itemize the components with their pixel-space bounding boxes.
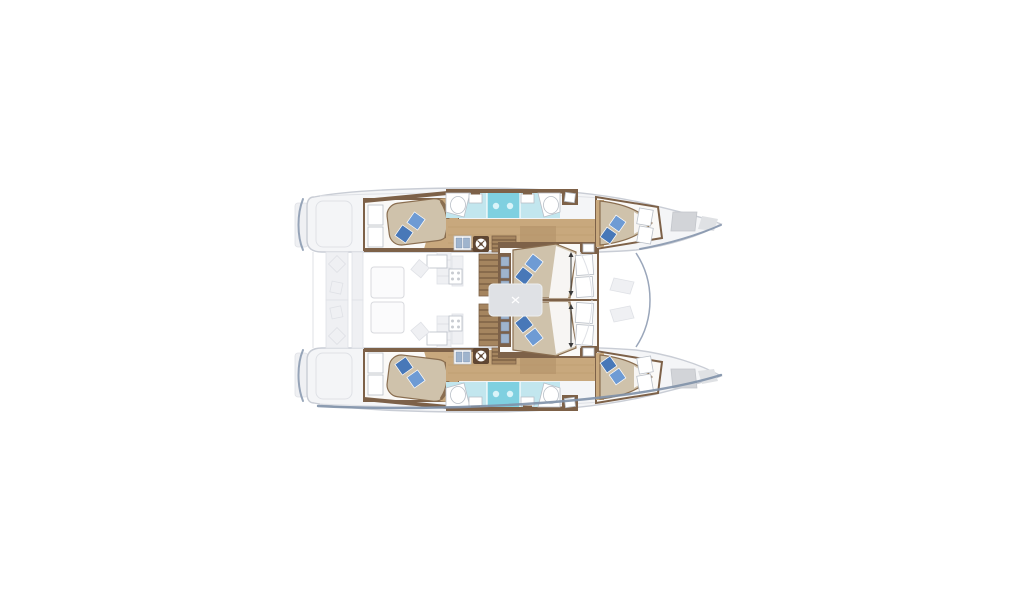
floorplan-canvas <box>0 0 1024 600</box>
port-side-plan <box>295 188 721 300</box>
starboard-side-plan <box>295 300 721 412</box>
catamaran-floorplan <box>0 0 1024 600</box>
salon-table <box>489 284 542 316</box>
